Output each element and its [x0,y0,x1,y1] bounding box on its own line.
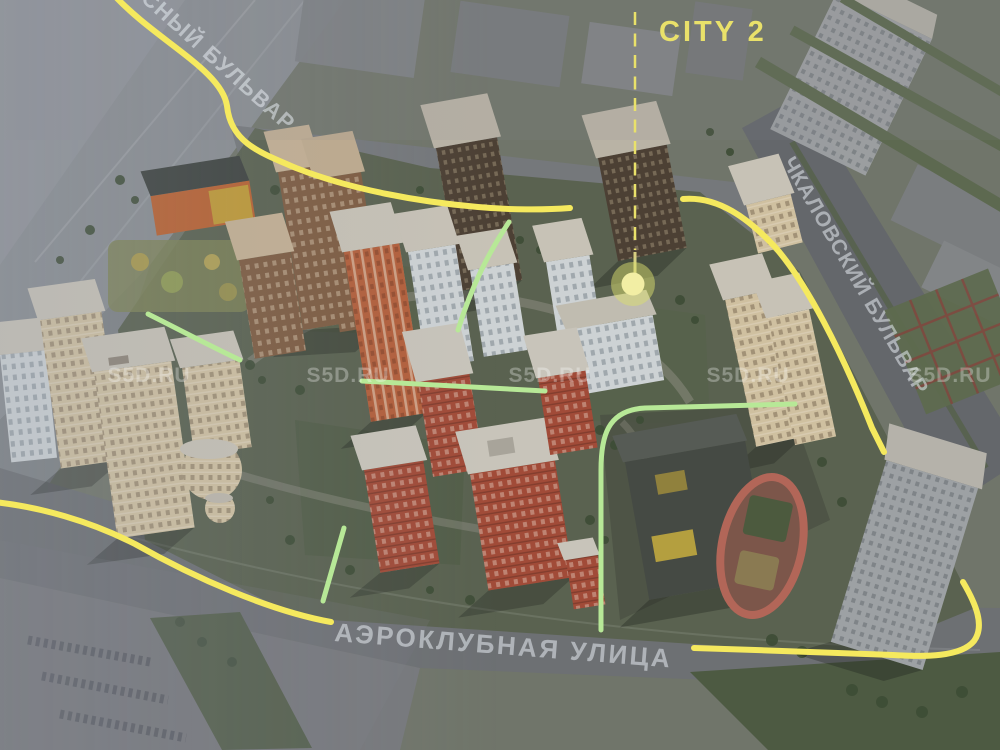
watermark: S5D.RU [306,364,389,387]
masterplan-map: СНЫЙ БУЛЬВАР ЧКАЛОВСКИЙ БУЛЬВАР АЭРОКЛУБ… [0,0,1000,750]
watermark: S5D.RU [107,364,190,387]
watermark: S5D.RU [508,364,591,387]
location-marker[interactable] [611,262,655,306]
aerial-render: СНЫЙ БУЛЬВАР ЧКАЛОВСКИЙ БУЛЬВАР АЭРОКЛУБ… [0,0,1000,750]
watermark: S5D.RU [908,364,991,387]
city2-callout-label[interactable]: CITY 2 [659,16,767,48]
watermark: S5D.RU [706,364,789,387]
